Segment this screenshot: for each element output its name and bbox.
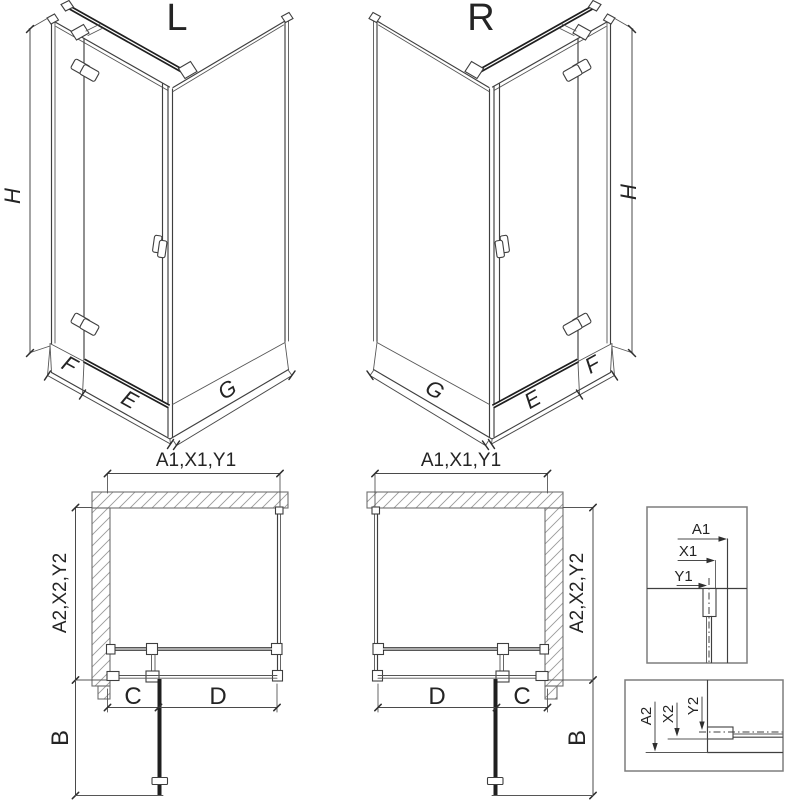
plan-right-c-label: C: [513, 683, 530, 710]
iso-view-left: [27, 1, 296, 450]
iso-left-height-label: H: [0, 188, 25, 204]
plan-right-depth-label: A2,X2,Y2: [567, 553, 588, 633]
iso-left-f-label: F: [58, 350, 83, 379]
plan-view-left: [107, 507, 284, 795]
plan-left-walls: [92, 492, 288, 699]
iso-right-height-label: H: [616, 184, 641, 200]
iso-left-e-label: E: [117, 385, 142, 414]
iso-right-e-label: E: [520, 385, 545, 414]
shower-enclosure-diagram: L R H H F E G F E G A1,X1,Y1 A1,X1,Y1 A2…: [0, 0, 800, 800]
detail-width-a1-label: A1: [692, 521, 710, 538]
plan-left-width-label: A1,X1,Y1: [156, 450, 236, 471]
iso-left-title: L: [166, 0, 187, 39]
plan-right-swing-label: B: [564, 730, 591, 746]
iso-right-f-label: F: [580, 349, 605, 378]
plan-left-d-label: D: [209, 683, 226, 710]
detail-depth-a2-label: A2: [638, 707, 655, 725]
plan-right-walls: [367, 492, 563, 699]
plan-left-swing-label: B: [47, 730, 74, 746]
iso-view-right: [367, 1, 636, 450]
plan-right-width-label: A1,X1,Y1: [421, 450, 501, 471]
plan-right-d-label: D: [428, 683, 445, 710]
plan-view-right: [372, 507, 549, 795]
detail-width-x1-label: X1: [679, 543, 697, 560]
iso-right-title: R: [467, 0, 494, 39]
plan-left-depth-label: A2,X2,Y2: [50, 553, 71, 633]
detail-width-y1-label: Y1: [674, 568, 692, 585]
detail-depth-y2-label: Y2: [685, 697, 702, 715]
detail-depth-x2-label: X2: [660, 705, 677, 723]
technical-drawing-sheet: L R H H F E G F E G A1,X1,Y1 A1,X1,Y1 A2…: [0, 0, 800, 800]
plan-left-c-label: C: [124, 683, 141, 710]
